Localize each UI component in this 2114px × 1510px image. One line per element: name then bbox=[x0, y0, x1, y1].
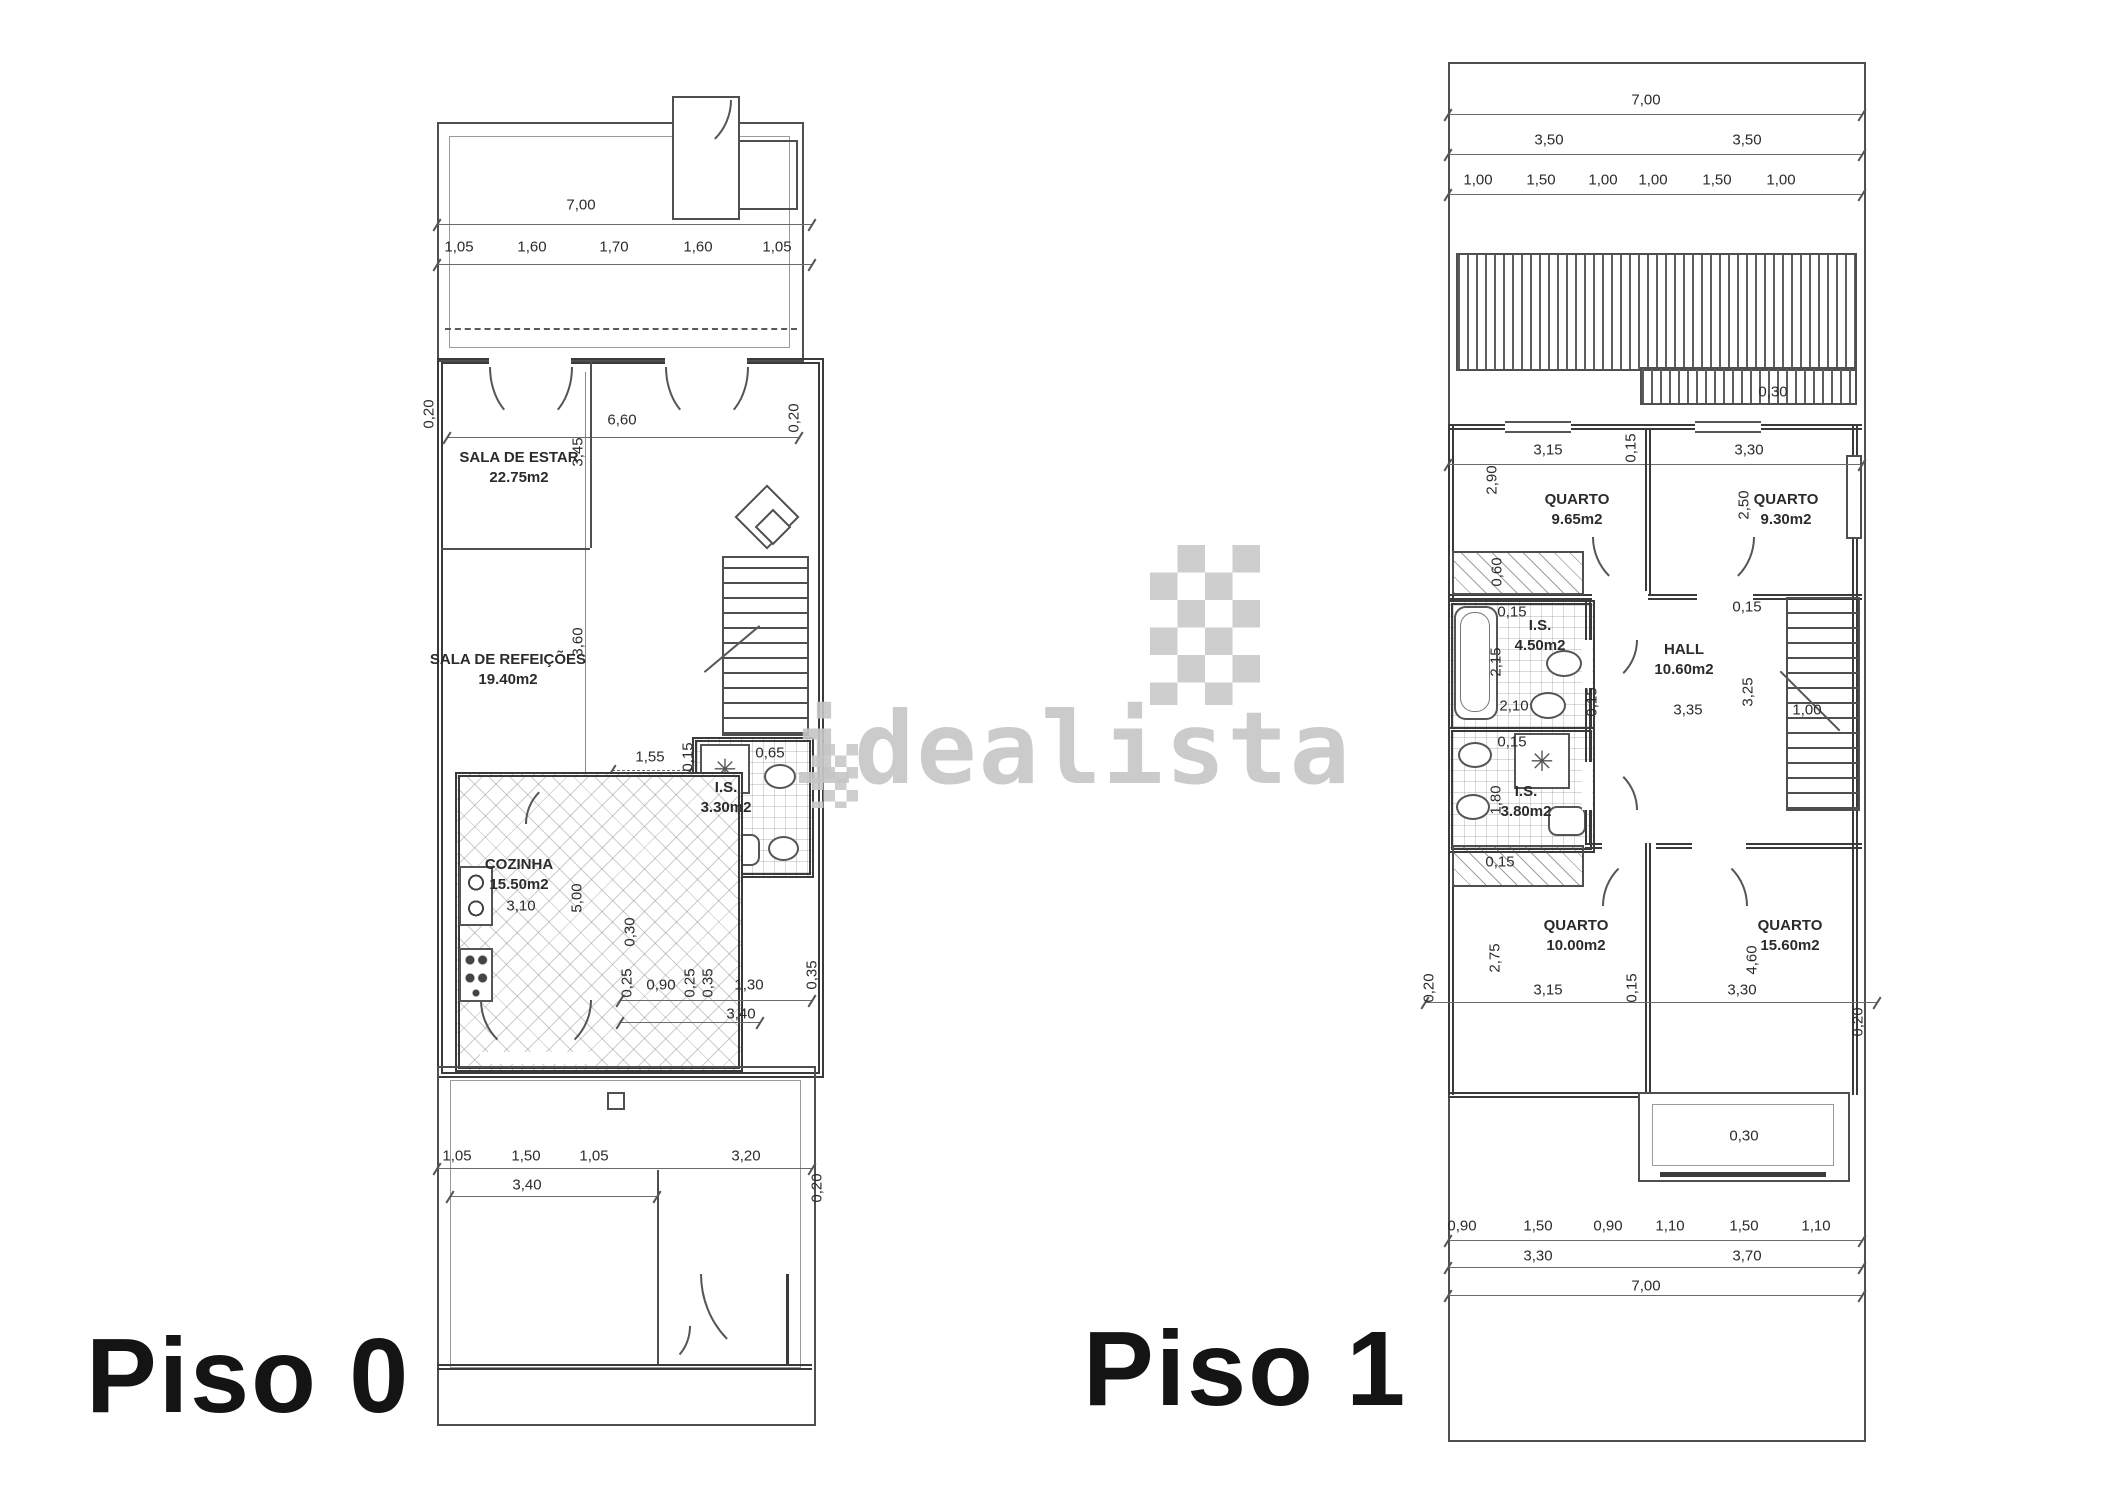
idealista-watermark: idealista bbox=[792, 690, 1352, 807]
room-label: QUARTO10.00m2 bbox=[1544, 916, 1609, 955]
watermark-pixels bbox=[1150, 545, 1260, 705]
floor-title-piso1: Piso 1 bbox=[1083, 1309, 1407, 1430]
room-label: QUARTO15.60m2 bbox=[1758, 916, 1823, 955]
room-label: QUARTO9.65m2 bbox=[1545, 490, 1610, 529]
room-label: I.S.3.80m2 bbox=[1501, 782, 1552, 821]
room-label: HALL10.60m2 bbox=[1654, 640, 1713, 679]
floorplan-canvas: 7,001,051,601,701,601,056,600,200,203,45… bbox=[0, 0, 2114, 1510]
room-label: I.S.4.50m2 bbox=[1515, 616, 1566, 655]
room-label: QUARTO9.30m2 bbox=[1754, 490, 1819, 529]
